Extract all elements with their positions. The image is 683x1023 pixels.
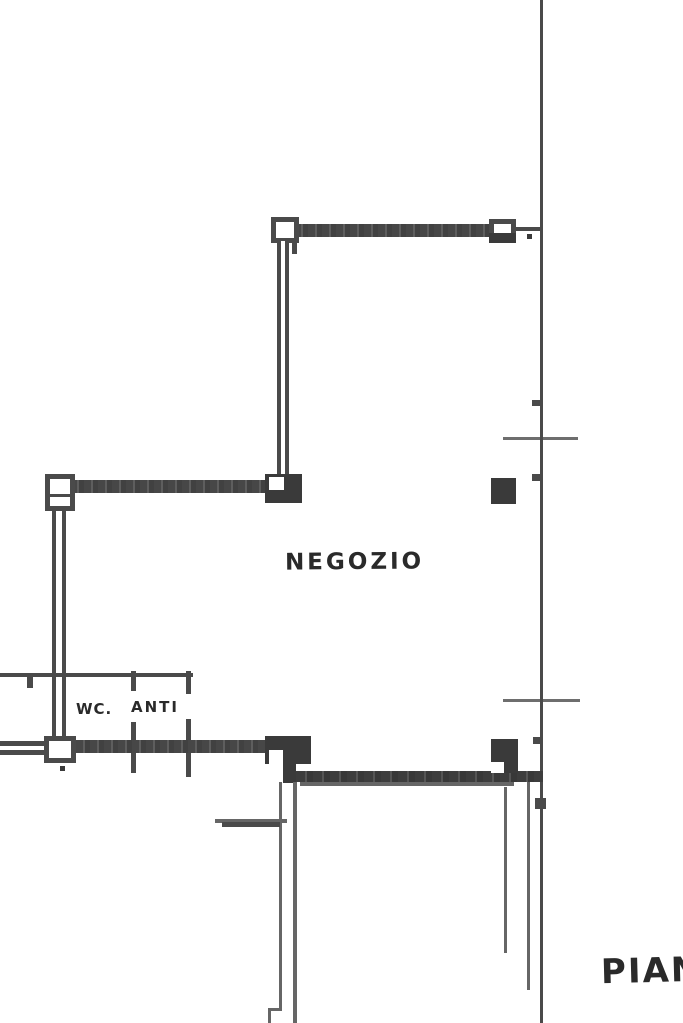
wall-middle: [70, 480, 266, 493]
pillar-top-left: [271, 217, 299, 243]
ink-dot-bottom-left: [60, 766, 65, 771]
boundary-line-vertical: [540, 0, 543, 1023]
dimension-dash-upper: [503, 437, 578, 440]
wall-left-upper: [277, 241, 289, 476]
pillar-top-left-tick: [292, 243, 297, 254]
boundary-tick-upper: [532, 400, 541, 406]
wall-bottom-left: [76, 740, 267, 753]
room-label-wc: WC.: [76, 700, 112, 718]
pillar-top-right-base: [489, 233, 516, 243]
boundary-nub: [535, 798, 546, 809]
room-label-negozio: NEGOZIO: [285, 548, 424, 575]
pillar-middle-notch: [269, 477, 284, 490]
jamb-line-left-foot-v: [268, 1010, 271, 1023]
pillar-middle-left: [45, 474, 75, 511]
boundary-tick-mid: [532, 474, 541, 481]
wall-bottom-left-edge-2: [0, 750, 46, 755]
wall-connector-top: [516, 227, 540, 231]
wall-left-lower: [52, 511, 66, 738]
pillar-bottom-right-notch: [491, 762, 504, 773]
boundary-tick-lower: [533, 737, 541, 744]
jamb-line-left-inner: [293, 782, 297, 1023]
floor-plan-scan: NEGOZIO WC. ANTI PIAN: [0, 0, 683, 1023]
dimension-dash-lower: [503, 699, 580, 702]
wall-bottom-left-edge-1: [0, 741, 46, 746]
wall-top: [294, 224, 490, 237]
ink-dot-top: [527, 234, 532, 239]
column-block: [491, 478, 516, 504]
partition-tick-left: [27, 677, 33, 688]
jamb-line-left-outer: [279, 782, 282, 1010]
caption-pianta-partial: PIAN: [600, 950, 683, 993]
pillar-bottom-center-notch: [269, 750, 283, 764]
jamb-line-right-inner: [504, 787, 507, 953]
pillar-middle-left-divider: [48, 494, 72, 497]
jamb-line-right-outer: [527, 782, 530, 990]
partition-tick-mid-upper: [131, 671, 136, 691]
wall-bottom-right-shadow: [300, 782, 514, 786]
room-label-anti: ANTI: [131, 698, 179, 716]
pillar-bottom-center-step: [283, 764, 296, 783]
pillar-bottom-left: [44, 736, 76, 763]
door-tick-thick: [222, 822, 280, 827]
partition-tick-right-upper: [186, 671, 191, 694]
